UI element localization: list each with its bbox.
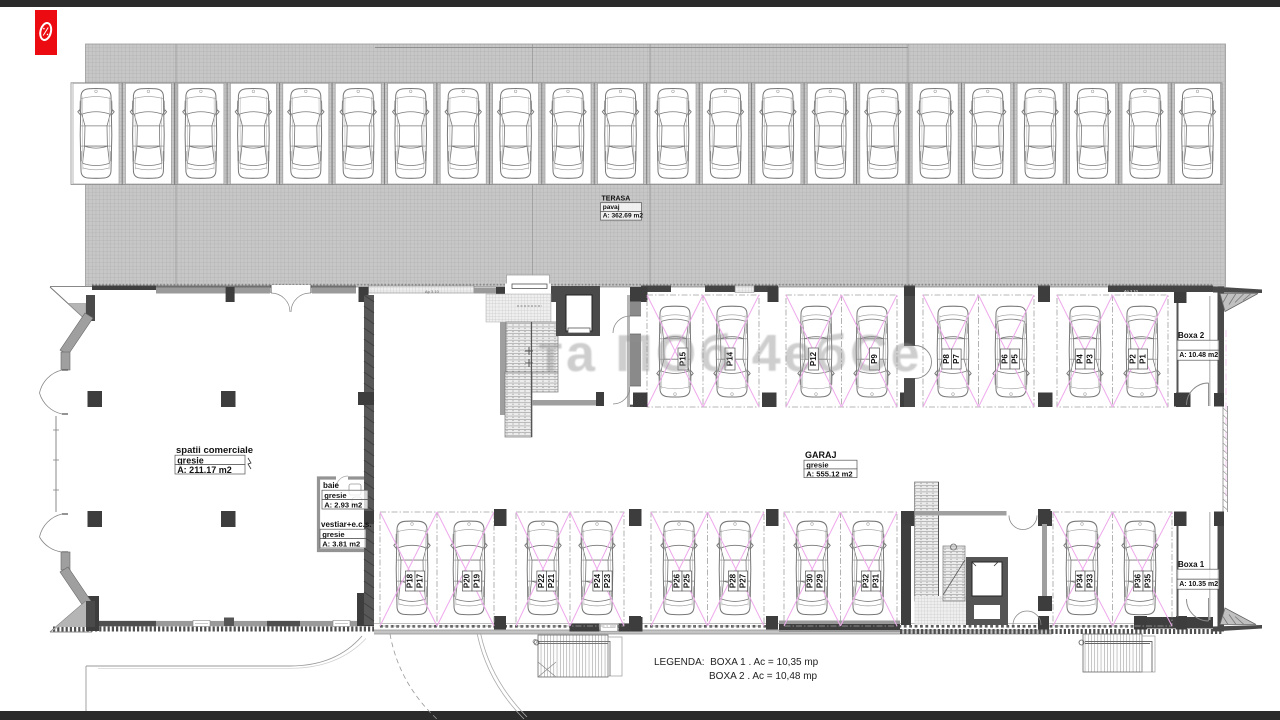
svg-text:P34: P34 — [1076, 573, 1085, 588]
svg-text:P36: P36 — [1134, 573, 1143, 588]
svg-text:P2: P2 — [1129, 354, 1138, 364]
svg-text:P6: P6 — [1001, 354, 1010, 364]
svg-text:P35: P35 — [1143, 573, 1152, 588]
svg-text:P5: P5 — [1010, 354, 1019, 364]
svg-text:та ПОб 4ебСе: та ПОб 4ебСе — [538, 325, 923, 383]
svg-text:P27: P27 — [738, 573, 747, 588]
svg-text:P33: P33 — [1085, 573, 1094, 588]
svg-text:gresie: gresie — [322, 530, 344, 539]
svg-text:A: 2.93 m2: A: 2.93 m2 — [324, 500, 362, 509]
svg-text:pavaj: pavaj — [603, 204, 620, 211]
svg-text:P20: P20 — [463, 573, 472, 588]
svg-text:P21: P21 — [547, 573, 556, 588]
svg-text:LEGENDA: BOXA 1 . Ac = 10,35: LEGENDA: BOXA 1 . Ac = 10,35 mp — [654, 657, 819, 668]
svg-text:P29: P29 — [815, 573, 824, 588]
svg-text:P4: P4 — [1076, 354, 1085, 364]
svg-text:BOXA 2 . Ac = 10,48 mp: BOXA 2 . Ac = 10,48 mp — [709, 671, 818, 682]
svg-text:P23: P23 — [603, 573, 612, 588]
svg-text:gresie: gresie — [806, 461, 828, 470]
svg-text:spatii comerciale: spatii comerciale — [176, 445, 253, 456]
svg-text:A: 211.17 m2: A: 211.17 m2 — [177, 465, 232, 475]
svg-text:baie: baie — [323, 481, 340, 490]
svg-text:P31: P31 — [871, 573, 880, 588]
svg-text:P24: P24 — [593, 573, 602, 588]
svg-text:P8: P8 — [942, 354, 951, 364]
svg-text:P18: P18 — [406, 573, 415, 588]
svg-text:P17: P17 — [415, 573, 424, 588]
svg-text:vestiar+e.c.s.: vestiar+e.c.s. — [321, 520, 371, 529]
svg-text:P28: P28 — [729, 573, 738, 588]
svg-text:A: 555.12 m2: A: 555.12 m2 — [806, 469, 852, 478]
svg-text:Ap 3.10: Ap 3.10 — [1124, 289, 1139, 294]
svg-text:Ap 3.10: Ap 3.10 — [425, 289, 440, 294]
svg-text:Boxa 1: Boxa 1 — [1178, 560, 1205, 569]
svg-text:P7: P7 — [952, 354, 961, 364]
svg-text:P26: P26 — [673, 573, 682, 588]
svg-text:P3: P3 — [1085, 354, 1094, 364]
svg-text:P22: P22 — [537, 573, 546, 588]
svg-text:P19: P19 — [472, 573, 481, 588]
svg-text:A: 10.48 m2: A: 10.48 m2 — [1179, 352, 1218, 359]
svg-text:Boxa 2: Boxa 2 — [1178, 331, 1205, 340]
svg-text:P32: P32 — [862, 573, 871, 588]
svg-text:gresie: gresie — [324, 491, 346, 500]
svg-text:P25: P25 — [682, 573, 691, 588]
svg-text:A: 362.69 m2: A: 362.69 m2 — [603, 213, 644, 220]
svg-text:P30: P30 — [806, 573, 815, 588]
svg-text:GARAJ: GARAJ — [805, 450, 837, 460]
svg-text:A: 10.35 m2: A: 10.35 m2 — [1179, 581, 1218, 588]
svg-text:TERASA: TERASA — [602, 196, 631, 203]
svg-text:P1: P1 — [1138, 354, 1147, 364]
svg-text:A: 3.81 m2: A: 3.81 m2 — [322, 539, 360, 548]
